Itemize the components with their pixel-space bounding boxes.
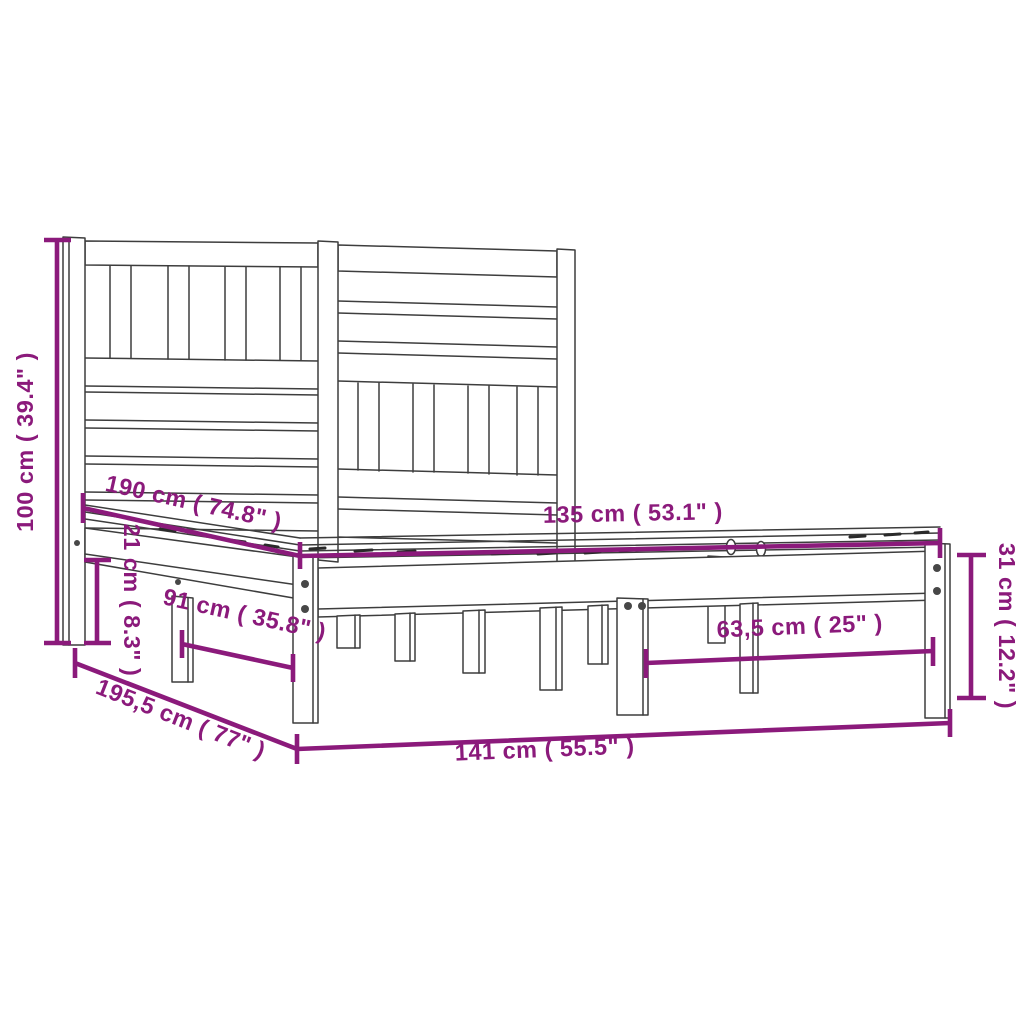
dimension-annotations: 100 cm ( 39.4" ) 21 cm ( 8.3" ) 190 cm (…: [12, 240, 1020, 766]
diagram-canvas: 100 cm ( 39.4" ) 21 cm ( 8.3" ) 190 cm (…: [0, 0, 1024, 1024]
dimension-leg-spacing-width: 63,5 cm ( 25" ): [646, 610, 933, 678]
dimension-label: 31 cm ( 12.2" ): [994, 543, 1020, 709]
dimension-label: 135 cm ( 53.1" ): [543, 498, 723, 528]
screw: [933, 564, 941, 572]
bed-drawing: [63, 237, 950, 723]
screw: [175, 579, 181, 585]
dimension-height-left: 100 cm ( 39.4" ): [12, 240, 71, 643]
dimension-label: 63,5 cm ( 25" ): [716, 610, 883, 643]
dimension-label: 141 cm ( 55.5" ): [454, 732, 635, 765]
bed-frame-dimension-diagram: 100 cm ( 39.4" ) 21 cm ( 8.3" ) 190 cm (…: [0, 0, 1024, 1024]
screw: [638, 602, 646, 610]
dimension-frame-height-right: 31 cm ( 12.2" ): [957, 543, 1020, 709]
foot-center-leg: [617, 598, 648, 715]
dimension-label: 100 cm ( 39.4" ): [12, 352, 38, 532]
screw: [301, 605, 309, 613]
foot-right-leg: [925, 543, 950, 718]
support-legs: [337, 603, 758, 693]
screw: [74, 540, 80, 546]
screw: [624, 602, 632, 610]
screw: [933, 587, 941, 595]
dimension-total-width: 141 cm ( 55.5" ): [297, 709, 950, 766]
dimension-label: 195,5 cm ( 77" ): [93, 674, 270, 764]
dimension-label: 21 cm ( 8.3" ): [119, 524, 145, 677]
screw: [301, 580, 309, 588]
headboard-right-panel: [338, 245, 557, 543]
